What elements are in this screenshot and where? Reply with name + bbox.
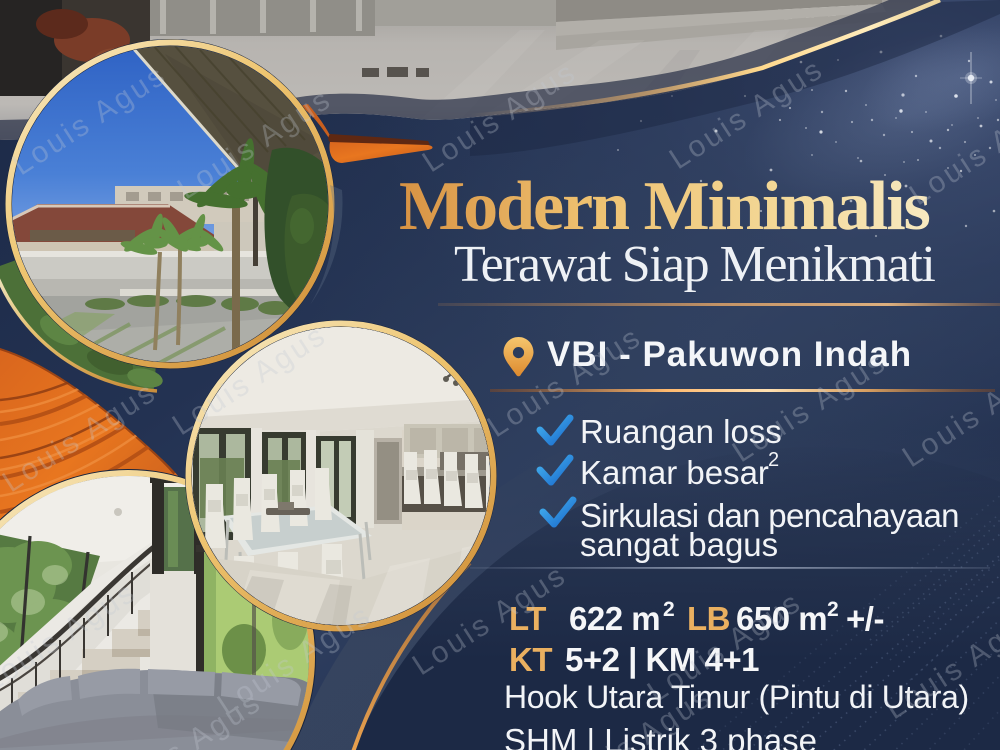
svg-text:Modern Minimalis: Modern Minimalis: [399, 168, 930, 245]
svg-text:sangat bagus: sangat bagus: [580, 526, 778, 563]
svg-text:2: 2: [827, 598, 838, 621]
svg-text:KT: KT: [509, 641, 552, 678]
svg-text:2: 2: [663, 598, 674, 621]
svg-text:+/-: +/-: [846, 600, 884, 637]
svg-text:622 m: 622 m: [569, 600, 660, 637]
svg-text:Terawat Siap Menikmati: Terawat Siap Menikmati: [454, 236, 935, 293]
